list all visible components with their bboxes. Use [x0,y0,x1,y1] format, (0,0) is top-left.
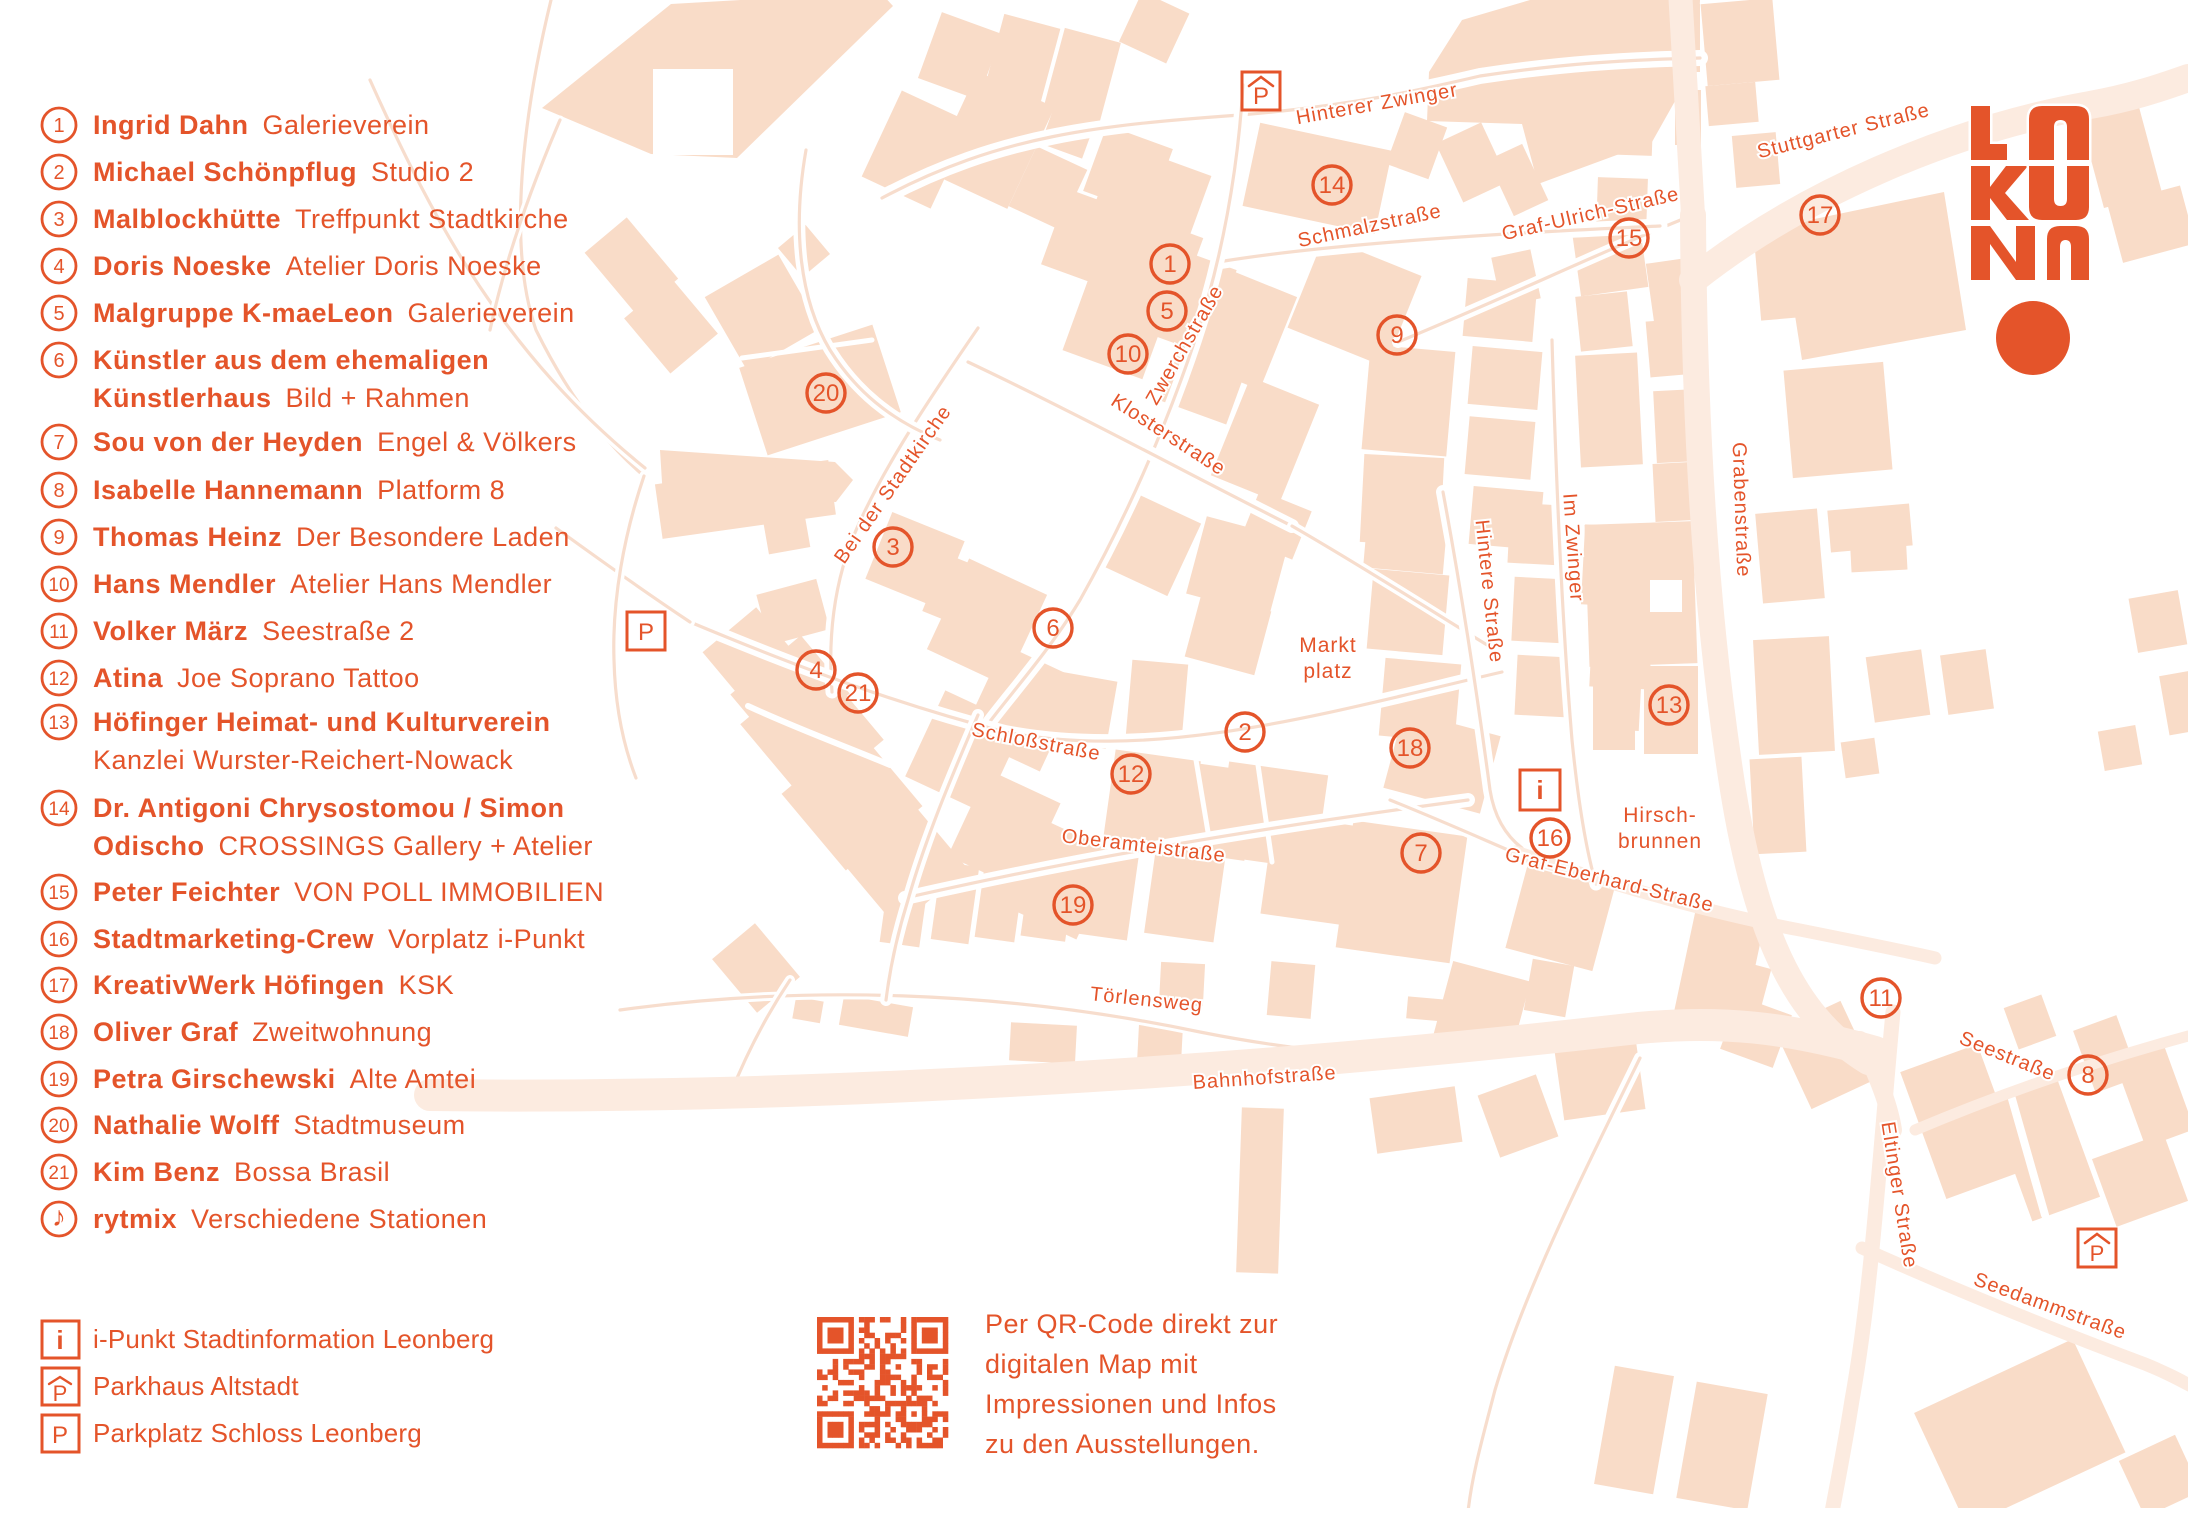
svg-text:13: 13 [1656,692,1683,719]
svg-text:10: 10 [48,575,69,596]
svg-text:9: 9 [1390,322,1403,349]
svg-text:Thomas HeinzDer Besondere Lade: Thomas HeinzDer Besondere Laden [93,522,570,552]
svg-text:1: 1 [53,115,64,137]
svg-text:7: 7 [1414,840,1427,867]
svg-text:i-Punkt Stadtinformation Leonb: i-Punkt Stadtinformation Leonberg [93,1324,494,1354]
svg-text:Sou von der HeydenEngel & Völk: Sou von der HeydenEngel & Völkers [93,427,577,457]
svg-text:6: 6 [53,350,64,372]
svg-text:3: 3 [53,209,64,231]
svg-text:Peter FeichterVON POLL IMMOBIL: Peter FeichterVON POLL IMMOBILIEN [93,877,604,907]
svg-text:Dr. Antigoni Chrysostomou / Si: Dr. Antigoni Chrysostomou / Simon [93,793,565,823]
svg-text:19: 19 [48,1070,69,1091]
svg-text:Kim BenzBossa Brasil: Kim BenzBossa Brasil [93,1157,390,1187]
svg-text:19: 19 [1060,892,1087,919]
svg-text:P: P [53,1381,68,1406]
svg-text:8: 8 [53,480,64,502]
svg-text:20: 20 [48,1116,69,1137]
svg-text:Per QR-Code direkt zur: Per QR-Code direkt zur [985,1309,1278,1339]
svg-text:Malgruppe K-maeLeonGalerievere: Malgruppe K-maeLeonGalerieverein [93,298,575,328]
svg-text:14: 14 [1319,172,1346,199]
svg-text:2: 2 [1238,719,1251,746]
svg-text:13: 13 [48,713,69,734]
svg-text:i: i [1536,775,1543,805]
svg-text:MalblockhütteTreffpunkt Stadtk: MalblockhütteTreffpunkt Stadtkirche [93,204,569,234]
svg-text:16: 16 [1537,825,1564,852]
svg-text:Petra GirschewskiAlte Amtei: Petra GirschewskiAlte Amtei [93,1064,476,1094]
svg-text:6: 6 [1046,615,1059,642]
svg-text:18: 18 [1397,735,1424,762]
svg-text:12: 12 [48,669,69,690]
svg-text:Doris NoeskeAtelier Doris Noes: Doris NoeskeAtelier Doris Noeske [93,251,542,281]
svg-text:Höfinger Heimat- und Kulturver: Höfinger Heimat- und Kulturverein [93,707,551,737]
svg-text:brunnen: brunnen [1618,830,1702,853]
svg-text:Michael SchönpflugStudio 2: Michael SchönpflugStudio 2 [93,157,474,187]
svg-text:14: 14 [48,799,70,820]
svg-text:AtinaJoe Soprano Tattoo: AtinaJoe Soprano Tattoo [93,663,420,693]
svg-text:3: 3 [886,534,899,561]
svg-text:20: 20 [813,380,840,407]
svg-text:Impressionen und Infos: Impressionen und Infos [985,1389,1277,1419]
svg-text:digitalen Map mit: digitalen Map mit [985,1349,1198,1379]
svg-text:P: P [52,1422,68,1449]
svg-text:8: 8 [2081,1062,2094,1089]
svg-text:11: 11 [1869,985,1894,1012]
svg-text:4: 4 [53,256,64,278]
svg-text:OdischoCROSSINGS Gallery + Ate: OdischoCROSSINGS Gallery + Atelier [93,831,593,861]
svg-text:9: 9 [53,527,64,549]
svg-text:7: 7 [53,432,64,454]
svg-text:4: 4 [809,657,822,684]
svg-text:12: 12 [1118,761,1145,788]
svg-text:Stadtmarketing-CrewVorplatz i-: Stadtmarketing-CrewVorplatz i-Punkt [93,924,585,954]
svg-text:P: P [1253,83,1269,110]
svg-text:Hirsch-: Hirsch- [1623,804,1697,827]
svg-text:P: P [638,619,654,646]
svg-text:Nathalie WolffStadtmuseum: Nathalie WolffStadtmuseum [93,1110,466,1140]
svg-text:Künstler aus dem ehemaligen: Künstler aus dem ehemaligen [93,345,489,375]
svg-text:11: 11 [49,622,69,643]
svg-text:Oliver GrafZweitwohnung: Oliver GrafZweitwohnung [93,1017,432,1047]
svg-text:zu den Ausstellungen.: zu den Ausstellungen. [985,1429,1260,1459]
svg-text:2: 2 [53,162,64,184]
svg-text:17: 17 [1807,202,1834,229]
svg-text:Hans MendlerAtelier Hans Mendl: Hans MendlerAtelier Hans Mendler [93,569,552,599]
svg-text:rytmixVerschiedene Stationen: rytmixVerschiedene Stationen [93,1204,487,1234]
svg-text:Kanzlei Wurster-Reichert-Nowac: Kanzlei Wurster-Reichert-Nowack [93,745,513,775]
svg-text:5: 5 [53,303,64,325]
svg-text:♪: ♪ [52,1201,66,1232]
svg-text:5: 5 [1160,298,1173,325]
svg-text:P: P [2090,1241,2105,1266]
svg-text:18: 18 [48,1023,69,1044]
svg-text:21: 21 [845,680,872,707]
svg-text:15: 15 [48,883,69,904]
svg-text:15: 15 [1616,225,1643,252]
svg-text:1: 1 [1163,251,1176,278]
svg-text:i: i [56,1325,63,1355]
svg-text:Isabelle HannemannPlatform 8: Isabelle HannemannPlatform 8 [93,475,505,505]
svg-text:17: 17 [48,976,69,997]
svg-text:platz: platz [1303,660,1352,683]
svg-text:Markt: Markt [1299,634,1357,657]
svg-text:21: 21 [48,1163,69,1184]
svg-text:Parkhaus Altstadt: Parkhaus Altstadt [93,1371,299,1401]
svg-text:Parkplatz Schloss Leonberg: Parkplatz Schloss Leonberg [93,1418,422,1448]
svg-text:16: 16 [48,930,69,951]
svg-text:10: 10 [1115,341,1142,368]
svg-text:KreativWerk HöfingenKSK: KreativWerk HöfingenKSK [93,970,454,1000]
